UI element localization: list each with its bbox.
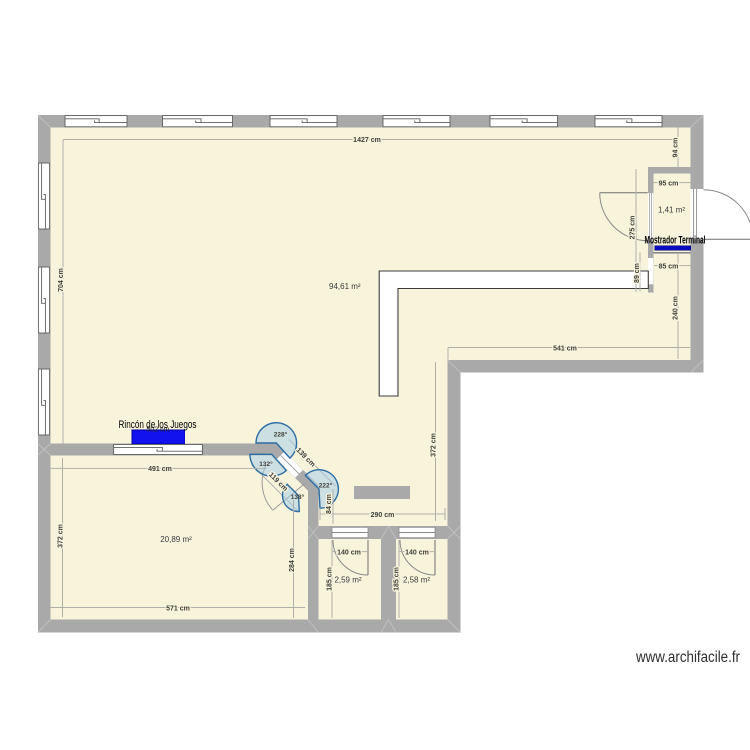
svg-text:140 cm: 140 cm (405, 550, 429, 557)
svg-text:275 cm: 275 cm (630, 216, 637, 240)
svg-text:185 cm: 185 cm (394, 567, 401, 591)
svg-text:290 cm: 290 cm (371, 512, 395, 519)
svg-text:228°: 228° (274, 431, 288, 439)
svg-text:84 cm: 84 cm (326, 494, 333, 514)
svg-text:85 cm: 85 cm (659, 264, 679, 271)
svg-text:541 cm: 541 cm (553, 345, 577, 352)
svg-text:95 cm: 95 cm (659, 180, 679, 187)
svg-text:704 cm: 704 cm (58, 268, 65, 292)
svg-text:2,59 m²: 2,59 m² (334, 576, 361, 585)
svg-text:1,41 m²: 1,41 m² (658, 206, 685, 215)
svg-text:140 cm: 140 cm (337, 550, 361, 557)
svg-text:1427 cm: 1427 cm (353, 137, 381, 144)
svg-text:571 cm: 571 cm (166, 606, 190, 613)
svg-text:Mostrador Terminal: Mostrador Terminal (645, 235, 706, 247)
svg-text:2,58 m²: 2,58 m² (403, 576, 430, 585)
svg-text:222°: 222° (319, 482, 333, 490)
svg-text:372 cm: 372 cm (431, 433, 438, 457)
svg-text:284 cm: 284 cm (289, 548, 296, 572)
svg-text:372 cm: 372 cm (58, 524, 65, 548)
svg-text:185 cm: 185 cm (327, 567, 334, 591)
svg-text:www.archifacile.fr: www.archifacile.fr (635, 649, 740, 666)
svg-text:94,61 m²: 94,61 m² (329, 282, 361, 291)
svg-text:89 cm: 89 cm (634, 263, 641, 283)
svg-text:491 cm: 491 cm (148, 466, 172, 473)
svg-text:Rincón de los Juegos: Rincón de los Juegos (119, 419, 197, 431)
svg-text:94 cm: 94 cm (673, 138, 680, 158)
svg-text:240 cm: 240 cm (673, 296, 680, 320)
svg-text:138°: 138° (291, 493, 305, 501)
svg-text:20,89 m²: 20,89 m² (160, 535, 192, 544)
svg-text:132°: 132° (259, 460, 273, 468)
